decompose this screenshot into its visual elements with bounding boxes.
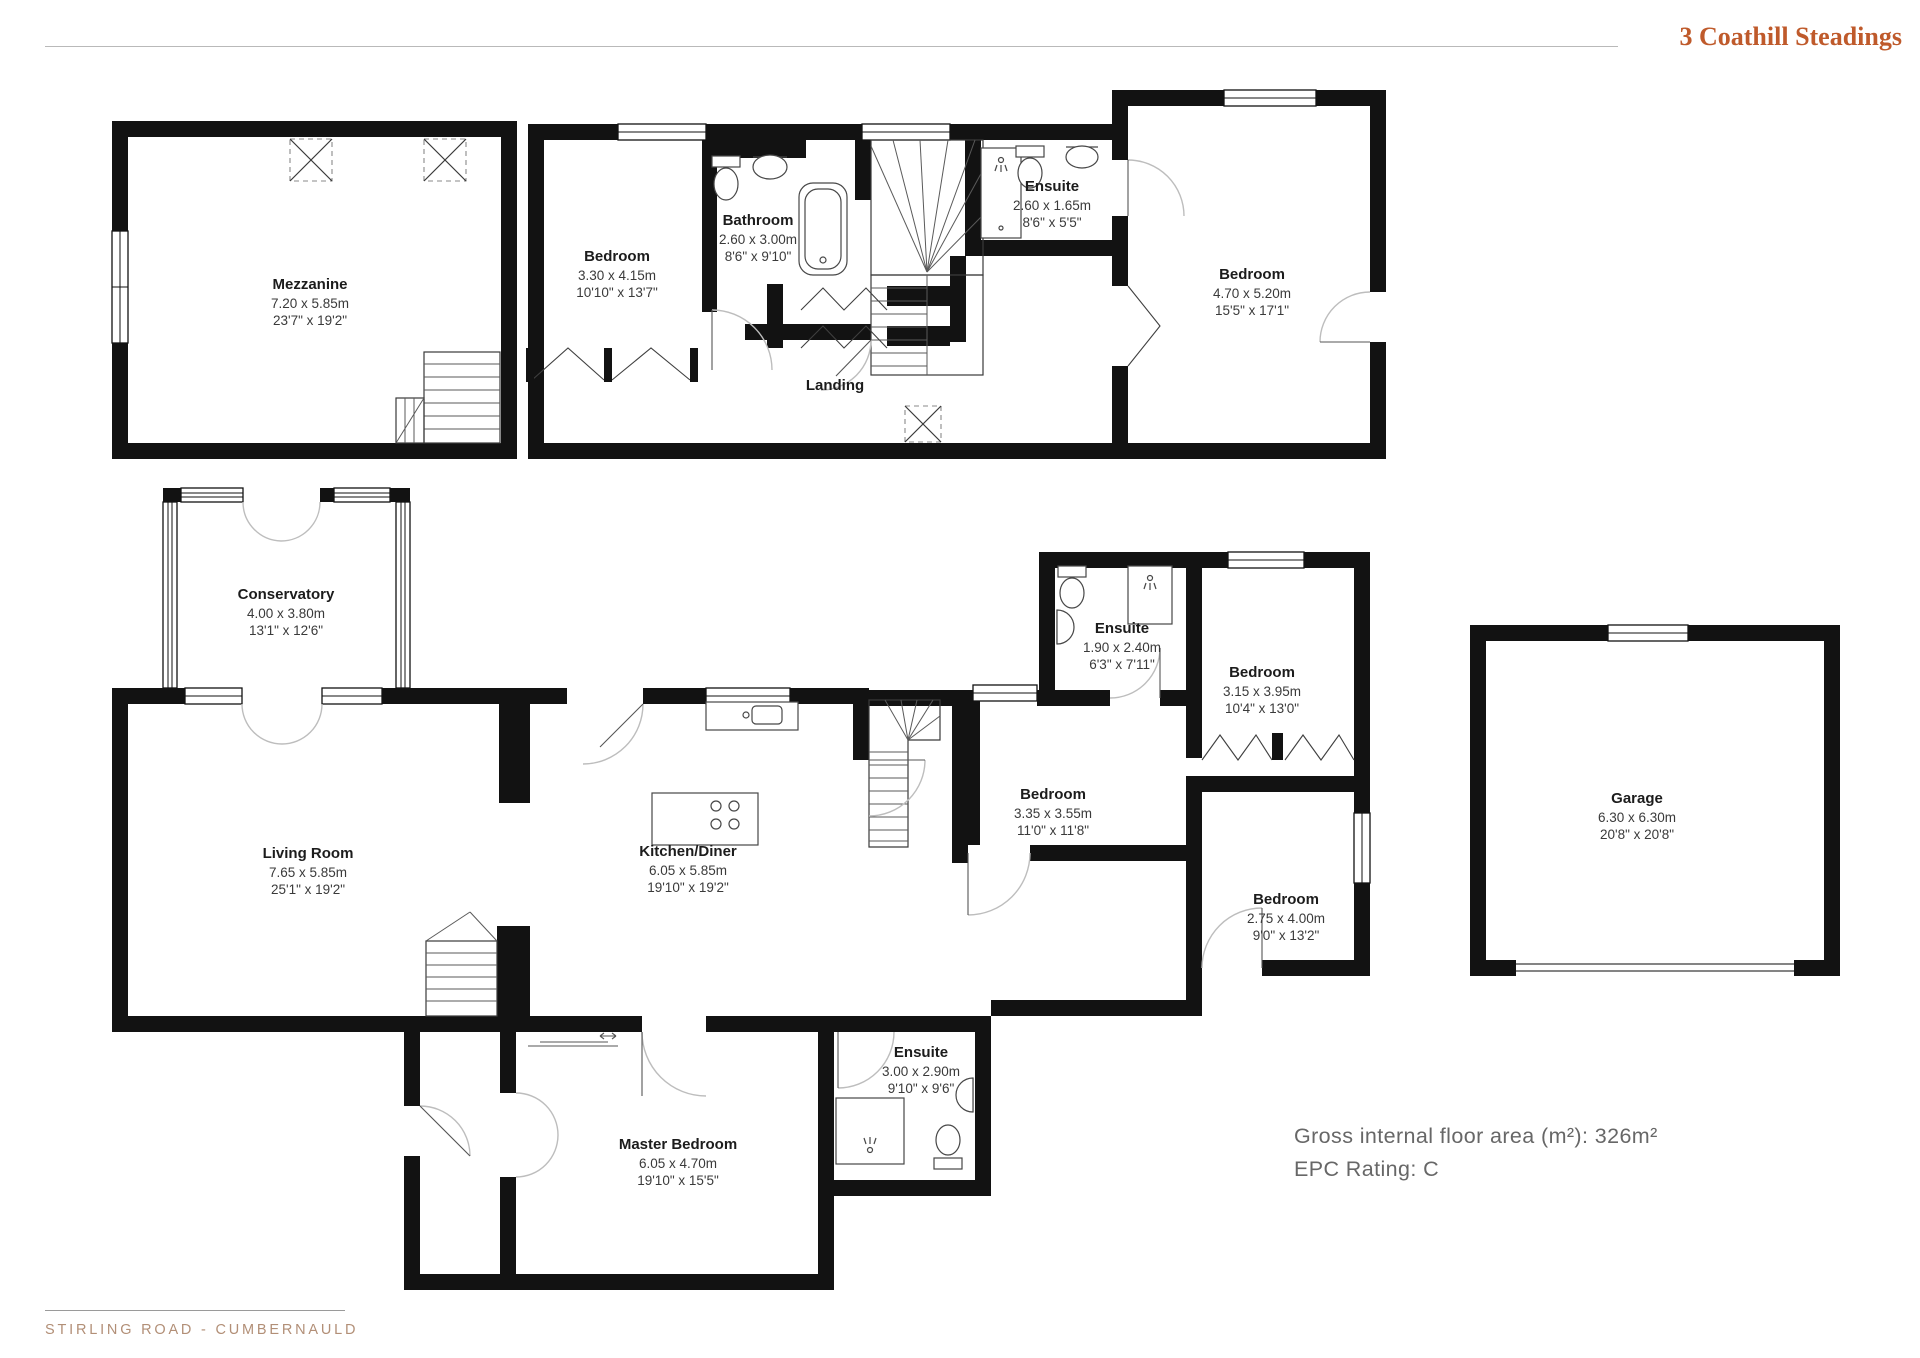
room-label-bathroom: Bathroom 2.60 x 3.00m 8'6" x 9'10" <box>719 212 797 265</box>
mezzanine-window <box>112 231 128 343</box>
room-label-ensuite3: Ensuite 3.00 x 2.90m 9'10" x 9'6" <box>882 1044 960 1097</box>
living-room-stairs <box>426 912 497 1016</box>
skylight-icon <box>905 406 941 442</box>
room-label-ensuite1: Ensuite 2.60 x 1.65m 8'6" x 5'5" <box>1013 178 1091 231</box>
room-label-mezzanine: Mezzanine 7.20 x 5.85m 23'7" x 19'2" <box>271 276 349 329</box>
room-label-master-bedroom: Master Bedroom 6.05 x 4.70m 19'10" x 15'… <box>619 1136 737 1189</box>
room-label-bedroom4: Bedroom 3.35 x 3.55m 11'0" x 11'8" <box>1014 786 1092 839</box>
room-label-conservatory: Conservatory 4.00 x 3.80m 13'1" x 12'6" <box>238 586 335 639</box>
epc-rating-text: EPC Rating: C <box>1294 1153 1658 1186</box>
footer-address: STIRLING ROAD - CUMBERNAULD <box>45 1322 358 1338</box>
skylight-icon <box>290 139 332 181</box>
room-label-kitchen-diner: Kitchen/Diner 6.05 x 5.85m 19'10" x 19'2… <box>639 843 737 896</box>
room-label-garage: Garage 6.30 x 6.30m 20'8" x 20'8" <box>1598 790 1676 843</box>
room-label-living-room: Living Room 7.65 x 5.85m 25'1" x 19'2" <box>263 845 354 898</box>
mezzanine-stairs <box>396 352 500 443</box>
skylight-icon <box>424 139 466 181</box>
wardrobe-doors-icon <box>1202 733 1354 760</box>
footer-rule <box>45 1310 345 1311</box>
ground-floor-stairs <box>869 700 940 847</box>
room-label-ensuite2: Ensuite 1.90 x 2.40m 6'3" x 7'11" <box>1083 620 1161 673</box>
room-label-bedroom3: Bedroom 3.15 x 3.95m 10'4" x 13'0" <box>1223 664 1301 717</box>
room-label-bedroom5: Bedroom 2.75 x 4.00m 9'0" x 13'2" <box>1247 891 1325 944</box>
floor-area-text: Gross internal floor area (m²): 326m² <box>1294 1120 1658 1153</box>
ground-floor-walls <box>112 552 1370 1290</box>
sliding-wardrobe-icon <box>528 1033 618 1046</box>
room-label-bedroom2: Bedroom 4.70 x 5.20m 15'5" x 17'1" <box>1213 266 1291 319</box>
room-label-bedroom1: Bedroom 3.30 x 4.15m 10'10" x 13'7" <box>576 248 658 301</box>
floor-area-summary: Gross internal floor area (m²): 326m² EP… <box>1294 1120 1658 1187</box>
room-label-landing: Landing <box>806 377 864 396</box>
kitchen-fixtures <box>652 702 798 845</box>
